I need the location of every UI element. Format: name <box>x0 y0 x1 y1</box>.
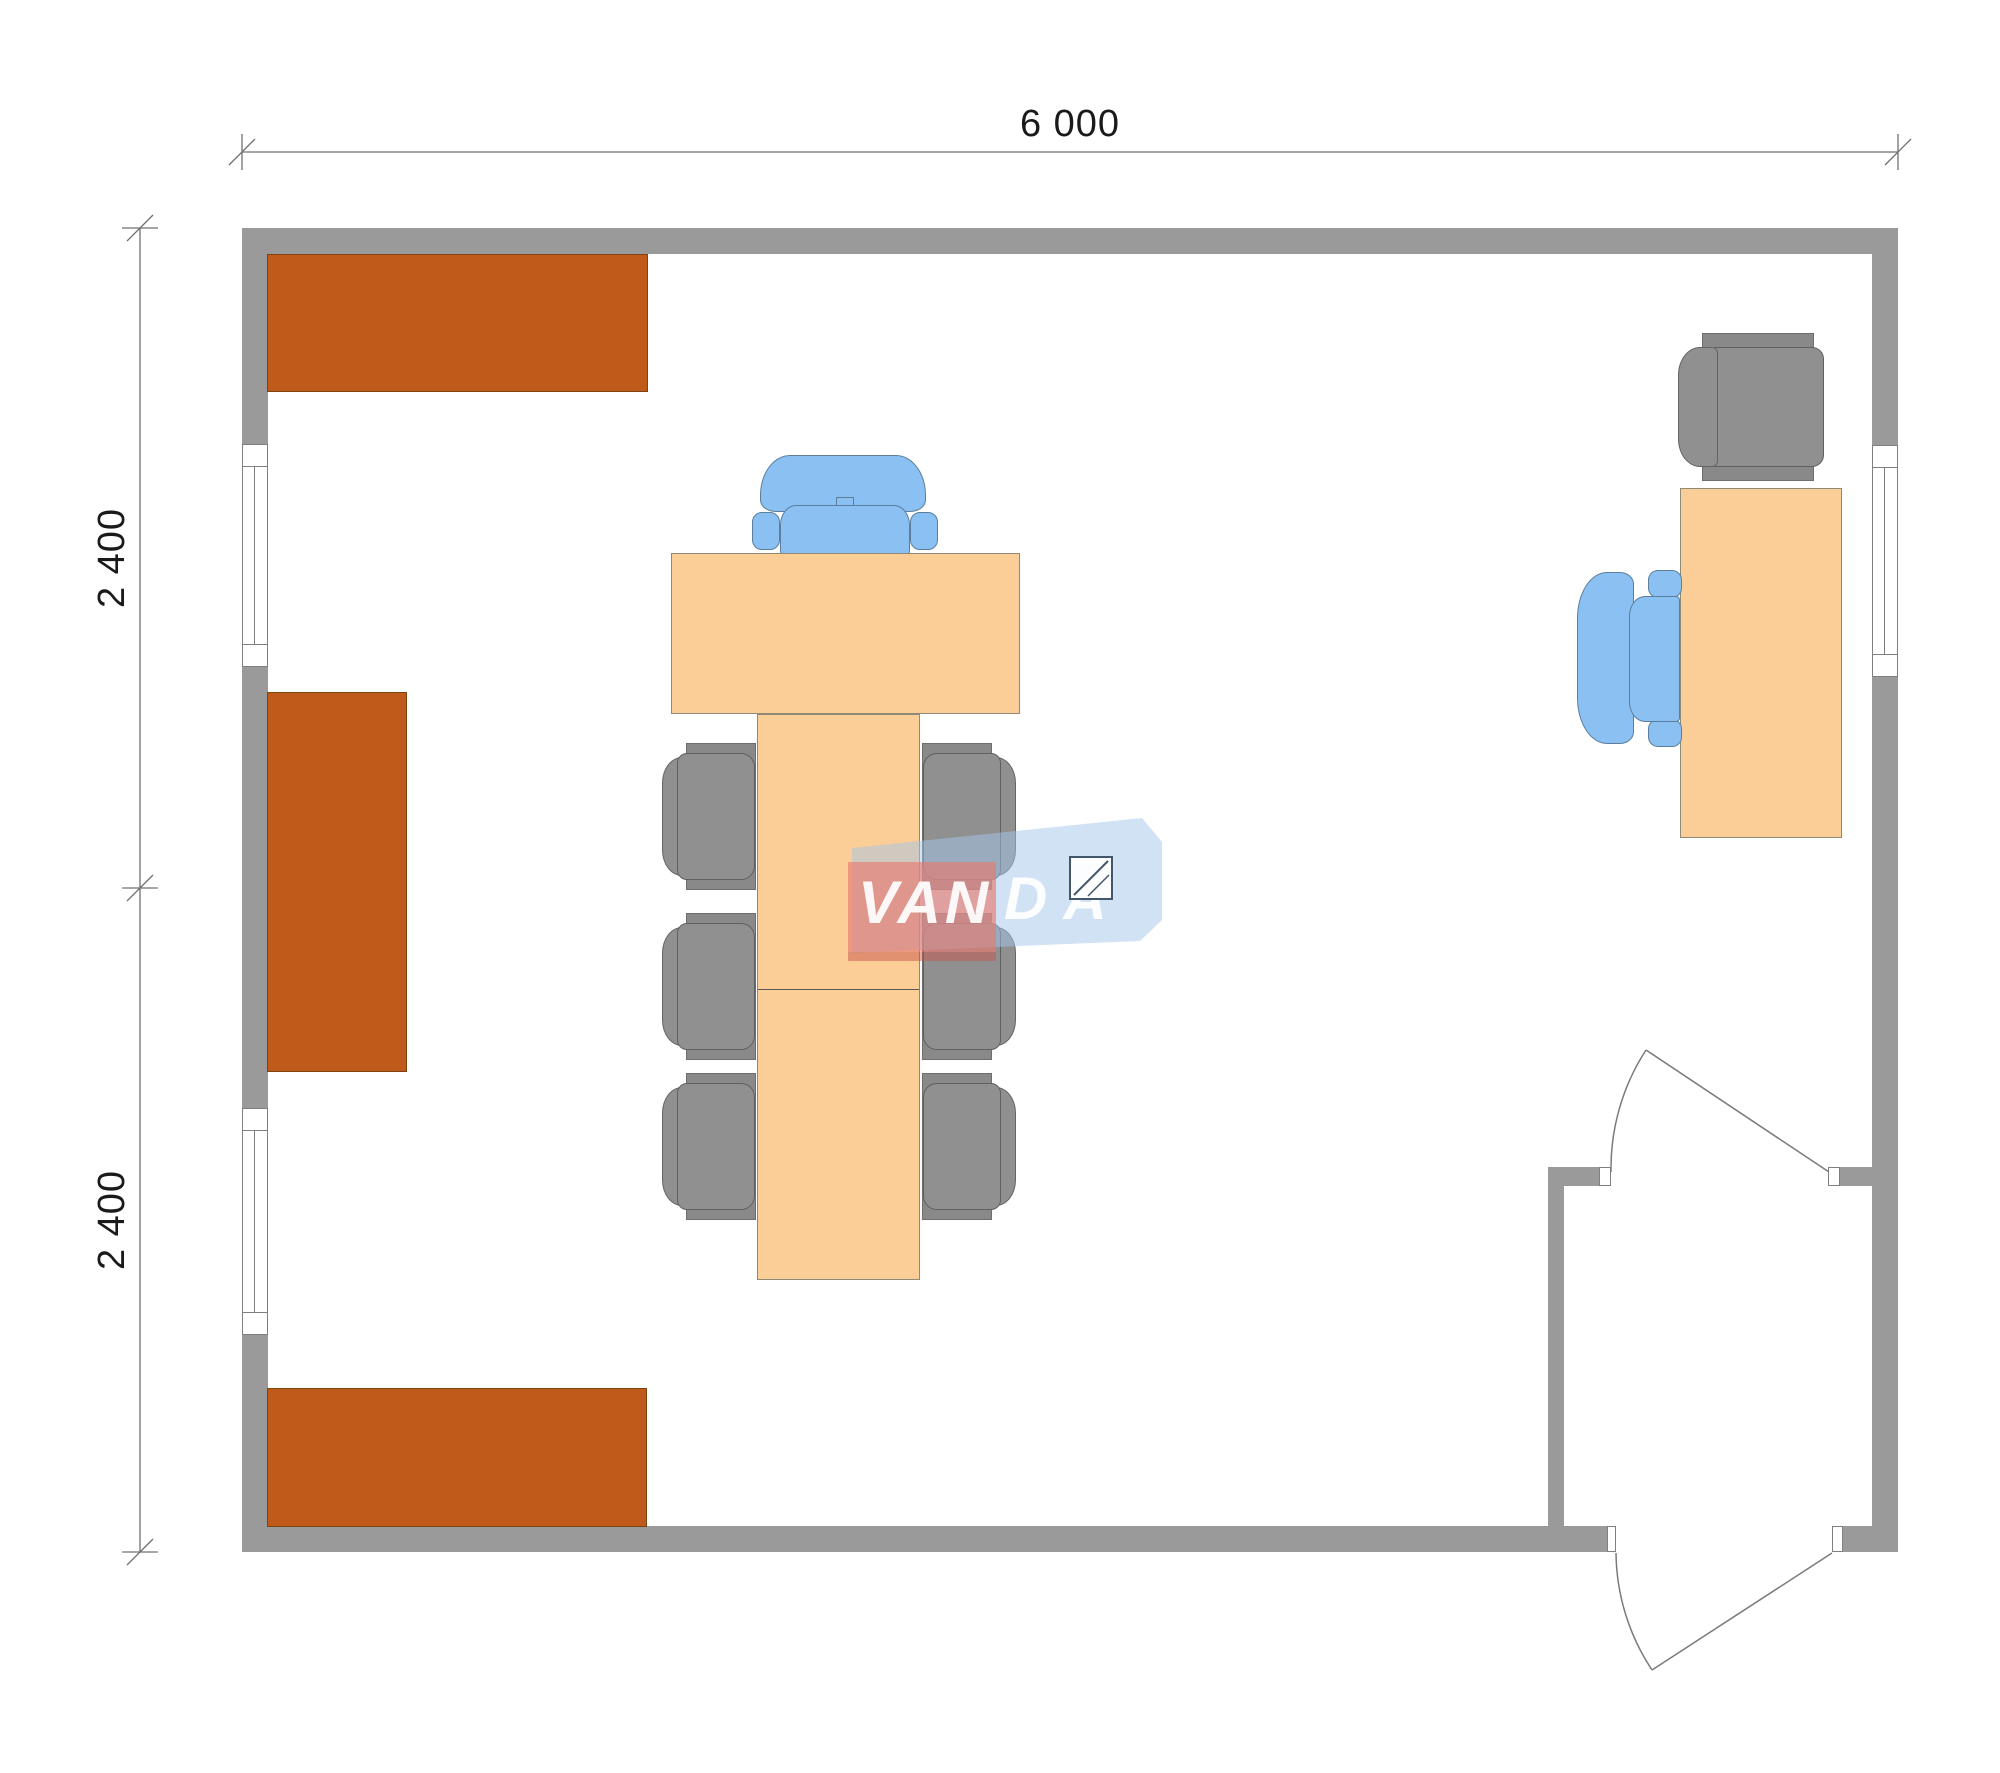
door-leaf <box>1652 1553 1832 1670</box>
floor-plan: 6 000 2 400 2 400 <box>0 0 2000 1773</box>
dimension-top <box>229 134 1911 170</box>
door-swing-arc <box>1611 1050 1646 1172</box>
dimension-left <box>122 215 158 1565</box>
exterior-door <box>1616 1553 1832 1670</box>
interior-door <box>1611 1050 1829 1172</box>
door-leaf <box>1646 1050 1829 1172</box>
watermark-red-edge <box>848 952 996 961</box>
watermark-text-van: VAN <box>858 872 992 934</box>
linework-overlay <box>0 0 2000 1773</box>
door-swing-arc <box>1616 1553 1652 1670</box>
logo-diagonal <box>1074 861 1108 895</box>
watermark-logo-square <box>1069 856 1113 900</box>
